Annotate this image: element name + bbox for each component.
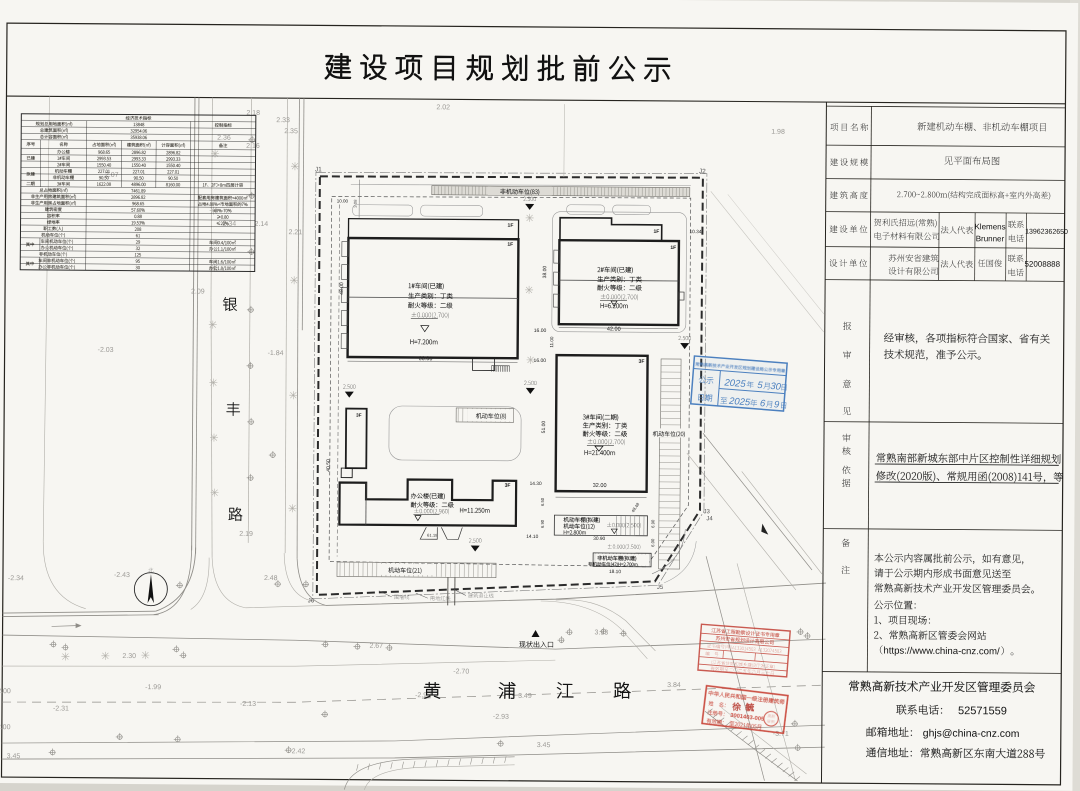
- svg-text:-1.84: -1.84: [268, 350, 284, 357]
- svg-text:1F: 1F: [653, 229, 659, 235]
- svg-text:2.14: 2.14: [255, 221, 269, 228]
- svg-text:40.50: 40.50: [326, 459, 332, 472]
- svg-text:-2.70: -2.70: [453, 668, 469, 675]
- svg-text:-2.31: -2.31: [53, 705, 69, 712]
- svg-text:6.00: 6.00: [650, 538, 655, 547]
- svg-text:1F: 1F: [507, 242, 513, 248]
- svg-text:6.50: 6.50: [540, 497, 545, 506]
- svg-text:Klemens: Klemens: [974, 222, 1005, 231]
- svg-text:-2.34: -2.34: [8, 575, 24, 582]
- svg-text:52571559: 52571559: [958, 705, 1007, 717]
- svg-text:3.84: 3.84: [667, 682, 681, 689]
- svg-text:51.00: 51.00: [541, 421, 547, 434]
- svg-text:https://www.china-cnz.com/: https://www.china-cnz.com/: [883, 646, 1000, 658]
- svg-text:2.09: 2.09: [191, 288, 205, 295]
- svg-text:ghjs@china-cnz.com: ghjs@china-cnz.com: [923, 728, 1020, 740]
- svg-text:-2.03: -2.03: [98, 347, 114, 354]
- svg-text:16.00: 16.00: [534, 358, 547, 364]
- svg-text:-1.99: -1.99: [145, 684, 161, 691]
- svg-text:-2.43: -2.43: [114, 572, 130, 579]
- svg-text:32.00: 32.00: [593, 483, 607, 489]
- svg-text:2.48: 2.48: [264, 575, 278, 582]
- svg-text:61.19: 61.19: [427, 533, 438, 538]
- svg-text:J2: J2: [699, 168, 706, 175]
- svg-text:3.49: 3.49: [518, 693, 532, 700]
- svg-text:2.00: 2.00: [0, 724, 11, 731]
- svg-text:-2.13: -2.13: [240, 701, 256, 708]
- svg-text:2.21: 2.21: [288, 229, 302, 236]
- svg-text:6.90: 6.90: [650, 519, 655, 528]
- svg-text:14.30: 14.30: [530, 481, 542, 487]
- svg-text:14.10: 14.10: [526, 534, 538, 540]
- svg-text:2.67: 2.67: [369, 643, 383, 650]
- svg-text:38.00: 38.00: [542, 266, 548, 279]
- svg-text:J1: J1: [315, 166, 322, 173]
- svg-text:30: 30: [770, 381, 782, 393]
- svg-text:-2.93: -2.93: [415, 692, 431, 699]
- svg-text:J3: J3: [703, 509, 710, 515]
- svg-text:2.36: 2.36: [217, 135, 231, 142]
- svg-text:2.35: 2.35: [284, 128, 298, 135]
- svg-text:52008888: 52008888: [1024, 260, 1060, 269]
- svg-text:16.00: 16.00: [534, 328, 547, 334]
- svg-text:Brunner: Brunner: [976, 234, 1005, 243]
- svg-text:2.02: 2.02: [436, 104, 450, 111]
- svg-text:3F: 3F: [356, 413, 362, 418]
- svg-text:60.00: 60.00: [419, 356, 433, 362]
- svg-text:2.19: 2.19: [239, 531, 253, 538]
- svg-text:13962362650: 13962362650: [1025, 229, 1068, 236]
- svg-text:-2.93: -2.93: [493, 714, 509, 721]
- svg-text:3.45: 3.45: [537, 742, 551, 749]
- svg-text:J5: J5: [657, 585, 664, 591]
- svg-text:1F: 1F: [508, 223, 514, 229]
- svg-text:1.98: 1.98: [771, 129, 785, 136]
- svg-text:3F: 3F: [505, 483, 511, 489]
- svg-text:3.45: 3.45: [7, 753, 21, 760]
- svg-text:48.00: 48.00: [339, 282, 345, 295]
- svg-text:2.33: 2.33: [276, 117, 290, 124]
- svg-text:42.00: 42.00: [607, 326, 621, 332]
- svg-text:2025: 2025: [723, 377, 747, 390]
- svg-text:2.16: 2.16: [246, 143, 260, 150]
- svg-text:3F: 3F: [639, 359, 645, 365]
- svg-text:2.00: 2.00: [0, 688, 11, 695]
- svg-text:10.00: 10.00: [337, 199, 349, 204]
- svg-text:18.10: 18.10: [609, 569, 621, 575]
- svg-text:30.90: 30.90: [593, 536, 605, 542]
- svg-text:2.42: 2.42: [292, 748, 306, 755]
- svg-text:10.34: 10.34: [689, 229, 701, 235]
- svg-text:2025: 2025: [728, 396, 752, 409]
- svg-text:6.90: 6.90: [540, 519, 545, 528]
- svg-text:J4: J4: [706, 516, 713, 522]
- svg-text:11.00: 11.00: [549, 336, 554, 348]
- svg-text:J6: J6: [308, 598, 315, 604]
- svg-text:2.30: 2.30: [122, 653, 136, 660]
- svg-text:1F: 1F: [670, 245, 676, 251]
